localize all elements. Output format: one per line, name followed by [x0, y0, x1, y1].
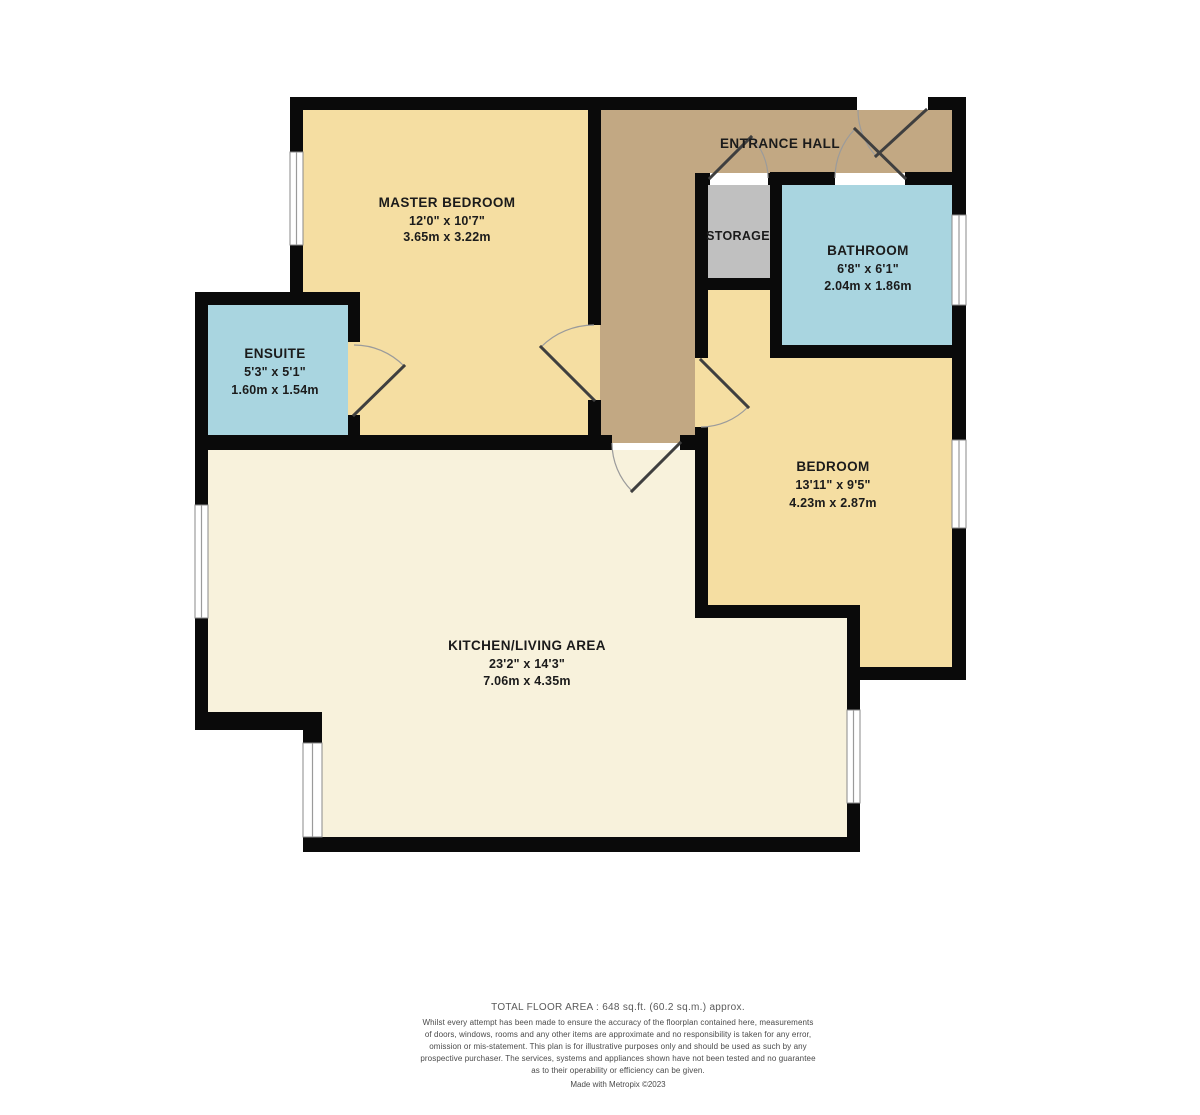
bedroom-metric: 4.23m x 2.87m — [789, 496, 876, 510]
wall-ensuite-right-lower — [348, 415, 360, 450]
window-kitchen-right — [847, 710, 860, 803]
wall-bathroom-top-right — [905, 172, 952, 185]
wall-kitchen-top-right — [680, 435, 708, 450]
wall-bedroom-bottom-left — [695, 605, 860, 618]
footer: TOTAL FLOOR AREA : 648 sq.ft. (60.2 sq.m… — [318, 1002, 918, 1089]
wall-bathroom-bottom — [770, 345, 966, 358]
kitchen-living-imperial: 23'2" x 14'3" — [489, 657, 565, 671]
master-bedroom-imperial: 12'0" x 10'7" — [409, 214, 485, 228]
entrance-hall-label: ENTRANCE HALL — [720, 136, 840, 151]
ensuite-metric: 1.60m x 1.54m — [231, 383, 318, 397]
kitchen-living-label: KITCHEN/LIVING AREA — [448, 638, 606, 653]
kitchen-living-metric: 7.06m x 4.35m — [483, 674, 570, 688]
master-bedroom-label: MASTER BEDROOM — [379, 195, 516, 210]
bathroom-imperial: 6'8" x 6'1" — [837, 262, 899, 276]
wall-hall-right-upper — [695, 173, 708, 358]
floorplan-page: MASTER BEDROOM 12'0" x 10'7" 3.65m x 3.2… — [0, 0, 1200, 1115]
wall-master-hall-upper — [588, 97, 601, 325]
window-kitchen-step — [303, 743, 322, 837]
floorplan: MASTER BEDROOM 12'0" x 10'7" 3.65m x 3.2… — [0, 0, 1200, 1115]
wall-storage-top-left — [695, 173, 710, 185]
window-bathroom-right — [952, 215, 966, 305]
metropix-credit: Made with Metropix ©2023 — [318, 1080, 918, 1089]
window-bedroom-right — [952, 440, 966, 528]
wall-top-left — [290, 97, 857, 110]
total-floor-area: TOTAL FLOOR AREA : 648 sq.ft. (60.2 sq.m… — [318, 1002, 918, 1013]
wall-right-outer — [952, 97, 966, 680]
bathroom-metric: 2.04m x 1.86m — [824, 279, 911, 293]
wall-bedroom-bottom-right — [847, 667, 966, 680]
wall-bathroom-left — [770, 173, 782, 358]
window-master-left — [290, 152, 303, 245]
wall-hall-right-lower — [695, 427, 708, 605]
bedroom-label: BEDROOM — [796, 459, 869, 474]
ensuite-label: ENSUITE — [244, 346, 305, 361]
wall-step-horizontal — [195, 712, 322, 730]
window-kitchen-left — [195, 505, 208, 618]
wall-ensuite-top — [195, 292, 360, 305]
wall-bottom — [303, 837, 860, 852]
wall-ensuite-right-upper — [348, 292, 360, 342]
room-bedroom-se — [847, 605, 952, 667]
storage-label: STORAGE — [706, 229, 770, 243]
bedroom-imperial: 13'11" x 9'5" — [795, 478, 870, 492]
master-bedroom-metric: 3.65m x 3.22m — [403, 230, 490, 244]
wall-kitchen-top-left — [195, 435, 612, 450]
room-entrance-hall-corridor — [600, 110, 695, 443]
wall-storage-bottom — [695, 278, 782, 290]
disclaimer-text: Whilst every attempt has been made to en… — [419, 1017, 817, 1077]
bathroom-label: BATHROOM — [827, 243, 909, 258]
exterior-notch — [195, 730, 303, 860]
ensuite-imperial: 5'3" x 5'1" — [244, 365, 306, 379]
